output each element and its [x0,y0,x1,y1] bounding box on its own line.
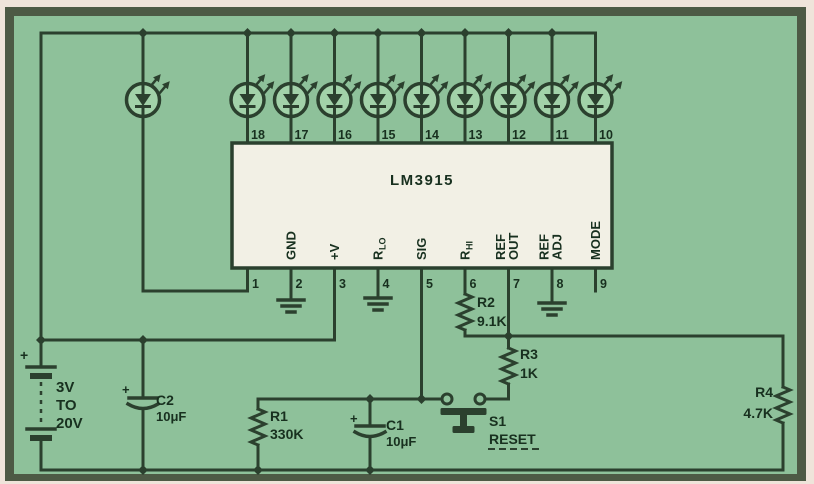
r2-ref: R2 [477,294,495,310]
pin-label-rlo: R [371,250,386,260]
pin-label-rhi-sub: HI [465,241,475,250]
pin-10-number: 10 [599,128,613,142]
pin-label-refout-2: OUT [506,233,521,261]
s1-pushbutton-bar [441,408,487,415]
pin-11-number: 11 [556,128,569,142]
r1-ref: R1 [270,408,288,424]
pin-12-number: 12 [512,128,526,142]
pin-1-number: 1 [252,277,259,291]
ic-label: LM3915 [390,172,454,189]
pin-5-number: 5 [426,277,433,291]
pin-14-number: 14 [425,128,439,142]
battery-value-line1: 3V [56,379,74,396]
battery-value-line3: 20V [56,415,83,432]
r4-value: 4.7K [743,405,773,421]
ic-top-pin-numbers: 18 17 16 15 14 13 12 11 10 [251,128,613,142]
pin-label-vplus: +V [327,243,342,260]
c2-plus-sign: + [122,382,130,397]
schematic-canvas: 18 17 16 15 14 13 12 11 10 LM3915 GND +V… [0,0,814,484]
ic-lm3915: LM3915 GND +V R LO SIG R HI REF OUT REF … [232,143,612,268]
r2-value: 9.1K [477,313,507,329]
pin-2-number: 2 [296,277,303,291]
battery-value-line2: TO [56,397,77,414]
pin-label-refadj-2: ADJ [550,234,565,260]
pin-label-mode: MODE [588,221,603,260]
pin-16-number: 16 [338,128,352,142]
c1-plus-sign: + [350,411,358,426]
pin-8-number: 8 [557,277,564,291]
s1-ref: S1 [489,413,506,429]
pin-3-number: 3 [339,277,346,291]
r4-ref: R4 [755,384,773,400]
s1-pushbutton-base [453,426,475,433]
c1-ref: C1 [386,417,404,433]
s1-label: RESET [489,431,536,447]
pin-13-number: 13 [469,128,483,142]
pin-label-gnd: GND [284,231,299,260]
c1-value: 10μF [386,434,416,449]
pin-label-rhi: R [458,250,473,260]
pin-18-number: 18 [251,128,265,142]
s1-right-terminal [475,394,485,404]
c2-ref: C2 [156,392,174,408]
r3-value: 1K [520,365,538,381]
schematic-page: 18 17 16 15 14 13 12 11 10 LM3915 GND +V… [0,0,814,484]
pin-7-number: 7 [513,277,520,291]
pin-label-sig: SIG [414,238,429,260]
battery-plus-sign: + [20,347,28,363]
pin-17-number: 17 [295,128,309,142]
pin-label-rlo-sub: LO [378,238,388,251]
pin-4-number: 4 [383,277,390,291]
pin-15-number: 15 [382,128,396,142]
s1-left-terminal [442,394,452,404]
c2-value: 10μF [156,409,186,424]
pin-6-number: 6 [470,277,477,291]
r1-value: 330K [270,426,303,442]
s1-pushbutton-stem [460,414,467,427]
r3-ref: R3 [520,346,538,362]
pin-9-number: 9 [600,277,607,291]
